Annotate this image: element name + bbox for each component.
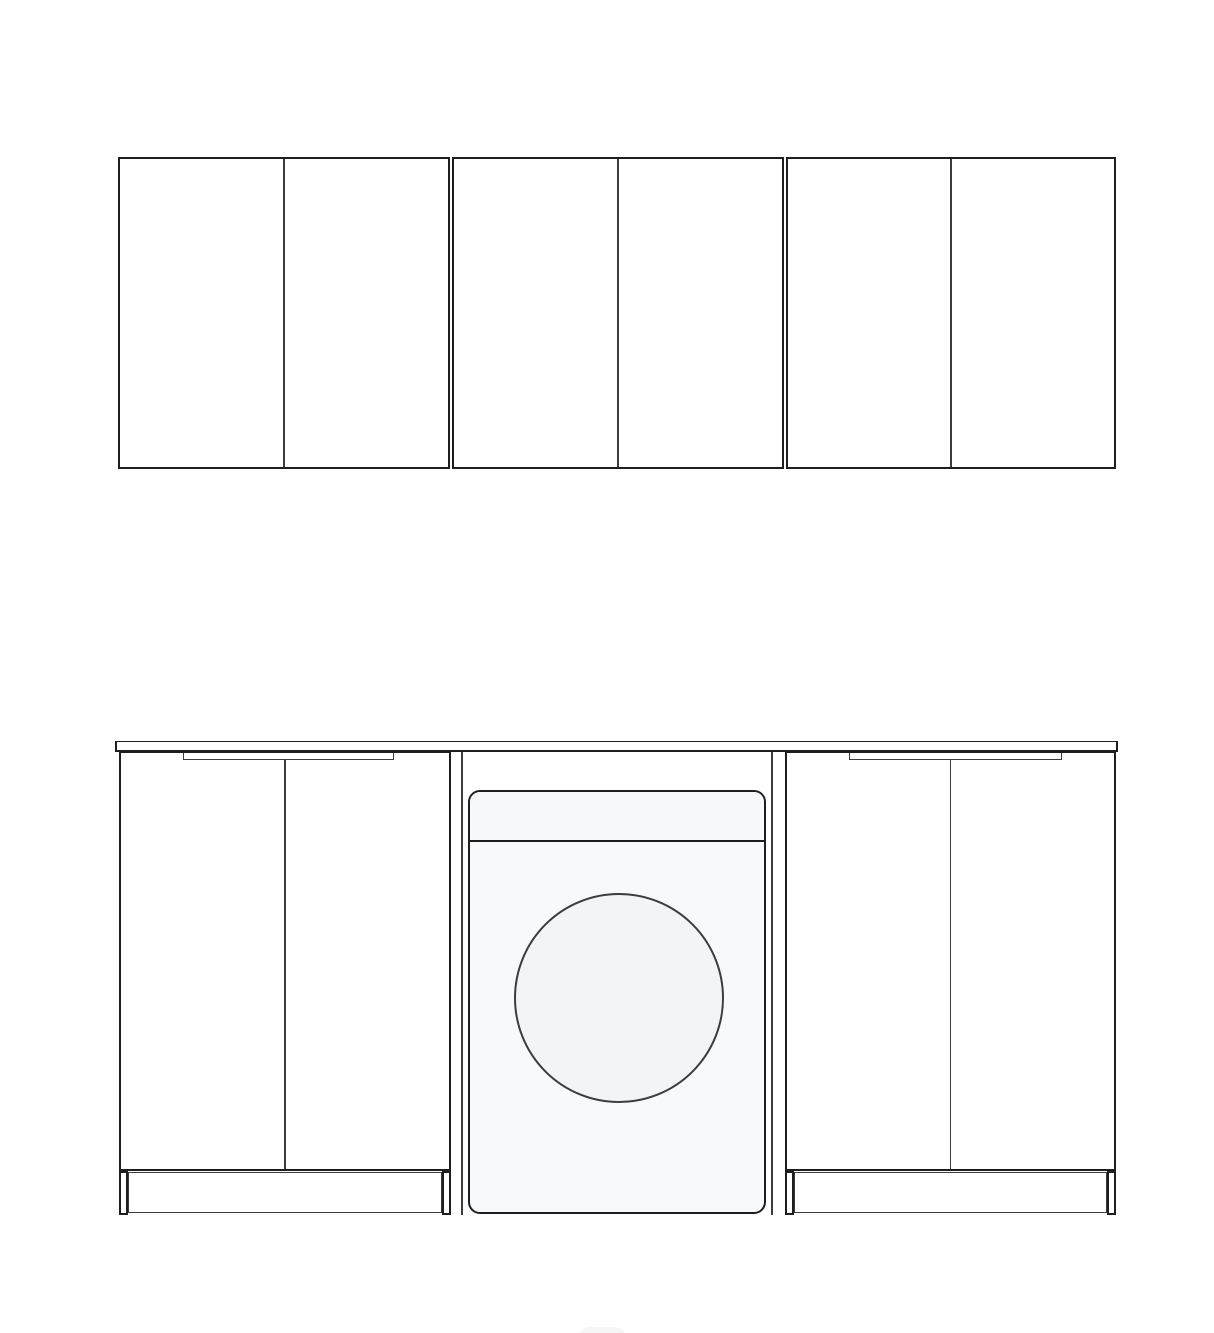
base-cabinet-right-plinth-leg [785,1171,794,1215]
wall-cabinet-left-door-divider [283,159,285,467]
washer-niche-left-panel [461,752,463,1215]
wall-cabinet-left[interactable] [118,157,450,469]
base-cabinet-right-handle-groove [849,753,1062,760]
bottom-edge-artifact [578,1327,626,1333]
base-cabinet-left-plinth-leg [119,1171,128,1215]
base-cabinet-left-plinth-leg [442,1171,451,1215]
countertop [115,741,1118,752]
base-cabinet-right-plinth-board [794,1172,1107,1213]
wall-cabinet-right[interactable] [786,157,1116,469]
wall-cabinet-center[interactable] [452,157,784,469]
base-cabinet-right[interactable] [785,752,1116,1171]
base-cabinet-left-plinth-board [128,1172,442,1213]
washing-machine-control-panel [470,792,764,842]
base-cabinet-left[interactable] [119,752,451,1171]
washer-niche-right-panel [771,752,773,1215]
washing-machine[interactable] [468,790,766,1214]
wall-cabinet-right-door-divider [950,159,952,467]
wall-cabinet-center-door-divider [617,159,619,467]
washing-machine-door-drum [514,893,724,1103]
kitchen-elevation-canvas [0,0,1214,1333]
base-cabinet-left-door-divider [284,753,286,1169]
base-cabinet-right-plinth-leg [1107,1171,1116,1215]
base-cabinet-right-door-divider [950,753,952,1169]
base-cabinet-left-handle-groove [183,753,394,760]
